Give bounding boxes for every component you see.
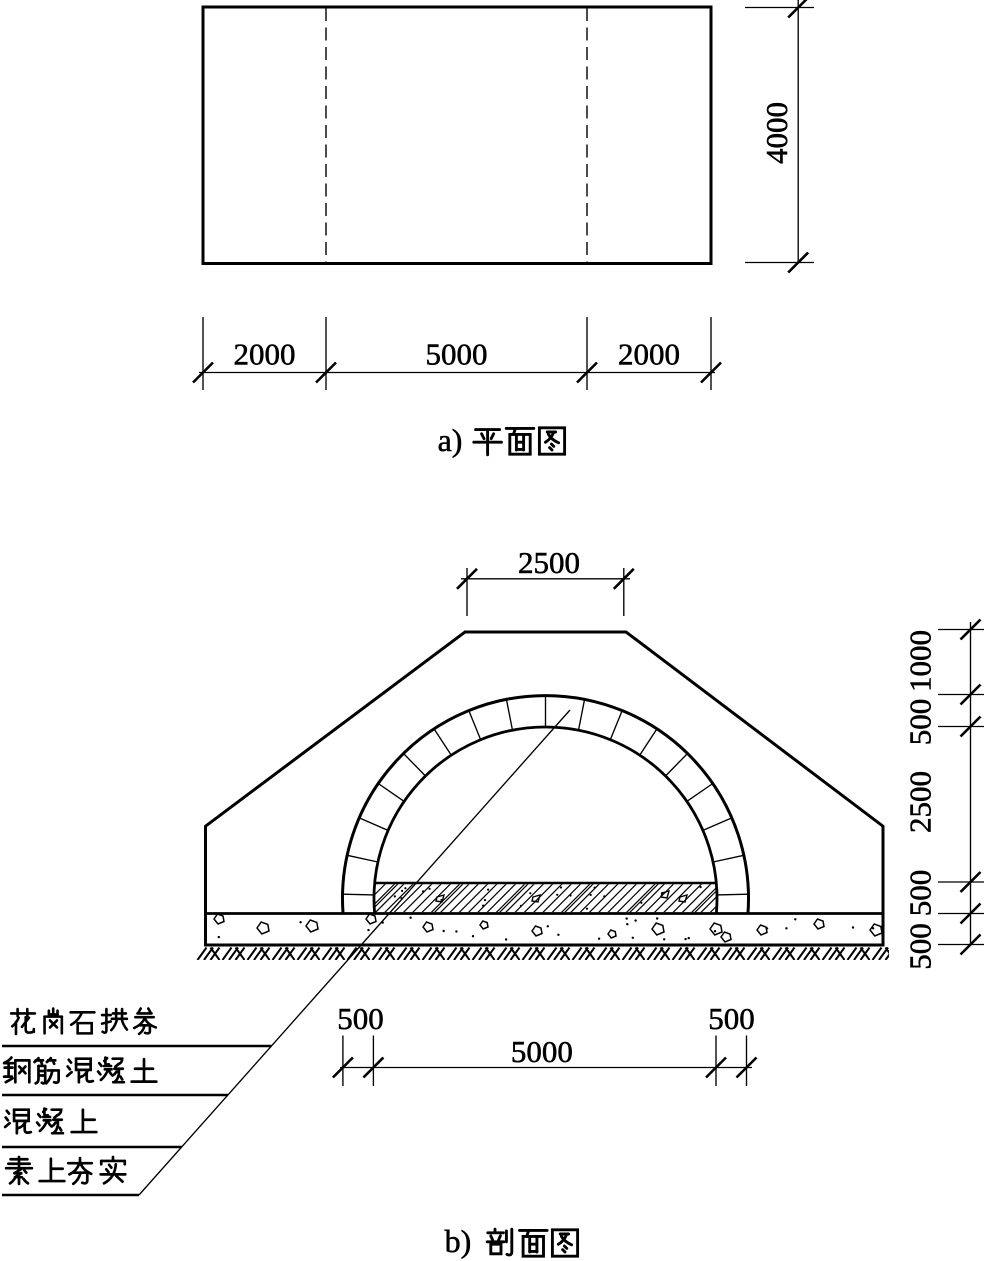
svg-text:2500: 2500 (518, 545, 580, 580)
svg-text:2500: 2500 (903, 771, 938, 833)
svg-text:a): a) (438, 422, 463, 458)
svg-text:5000: 5000 (426, 337, 488, 372)
svg-text:b): b) (445, 1223, 472, 1259)
svg-text:4000: 4000 (759, 102, 794, 164)
svg-text:500: 500 (337, 1001, 384, 1036)
svg-text:5000: 5000 (511, 1034, 573, 1069)
svg-text:2000: 2000 (618, 337, 680, 372)
svg-text:500: 500 (903, 923, 938, 970)
svg-text:500: 500 (903, 699, 938, 746)
svg-text:1000: 1000 (903, 630, 938, 692)
svg-text:2000: 2000 (234, 337, 296, 372)
svg-text:500: 500 (708, 1001, 755, 1036)
svg-text:500: 500 (903, 870, 938, 917)
